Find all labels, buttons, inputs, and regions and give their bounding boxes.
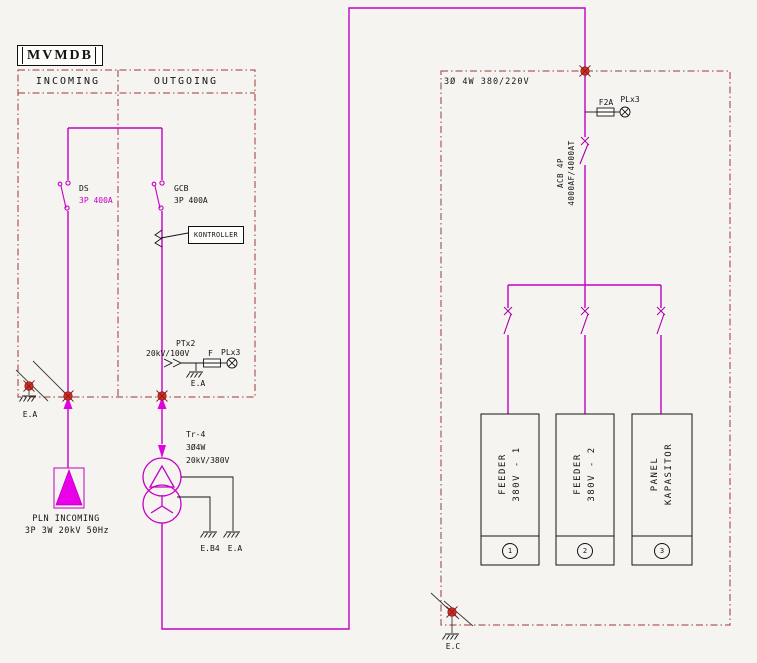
- feeder1-blade: [504, 314, 511, 334]
- feeder3-line2: KAPASITOR: [662, 443, 676, 505]
- transformer-ratio-label: 20kV/380V: [186, 456, 229, 465]
- section-incoming-label: INCOMING: [36, 76, 100, 87]
- kontroller-box: KONTROLLER: [188, 226, 244, 244]
- pt-ground-label: E.A: [191, 379, 205, 388]
- withdraw-arrows: [64, 397, 167, 458]
- node-right-corner-icon: [447, 607, 458, 618]
- feeder1-number-badge: 1: [502, 543, 518, 559]
- node-lv-entry-icon: [580, 66, 591, 77]
- gcb-rating-label: 3P 400A: [174, 196, 208, 205]
- plx3-lamp-label: PLx3: [620, 95, 639, 104]
- f2a-fuse-icon: [597, 108, 614, 116]
- node-incoming-icon: [63, 391, 74, 402]
- source-rating-label: 3P 3W 20kV 50Hz: [25, 527, 109, 536]
- section-outgoing-label: OUTGOING: [154, 76, 218, 87]
- node-outgoing-icon: [157, 391, 168, 402]
- gcb-switch-symbol: [152, 181, 164, 210]
- feeder3-number-badge: 3: [654, 543, 670, 559]
- panel-title: MVMDB: [17, 45, 103, 66]
- feeder2-blade: [581, 314, 588, 334]
- neutral-ground-label: E.B4: [200, 544, 219, 553]
- acb-contact-icon: [581, 137, 589, 145]
- ct-symbol: [155, 230, 188, 247]
- feeder2-line2: 380V - 2: [585, 446, 599, 501]
- feeder2-number-badge: 2: [577, 543, 593, 559]
- pt-lamp-icon: [227, 358, 237, 368]
- single-line-diagram: MVMDB INCOMING OUTGOING DS 3P 400A GCB 3…: [0, 0, 757, 663]
- tank-ground-icon: [224, 532, 241, 538]
- transformer-name-label: Tr-4: [186, 430, 205, 439]
- feeder3-contact-icon: [657, 307, 665, 315]
- pt-ground-icon: [187, 372, 204, 378]
- ds-name-label: DS: [79, 184, 89, 193]
- feeder3-line1: PANEL: [648, 443, 662, 505]
- pt-lamp-label: PLx3: [221, 348, 240, 357]
- plx3-lamp-icon: [620, 107, 630, 117]
- pt-name-label: PTx2: [176, 339, 195, 348]
- schematic-canvas: [0, 0, 757, 663]
- feeder2-contact-icon: [581, 307, 589, 315]
- pt-ratio-label: 20kV/100V: [146, 349, 189, 358]
- feeder3-blade: [657, 314, 664, 334]
- ds-rating-label: 3P 400A: [79, 196, 113, 205]
- feeder1-label: FEEDER 380V - 1: [496, 446, 524, 501]
- acb-rating-label: ACB 4P 4000AF/4000AT: [555, 140, 577, 205]
- lv-system-label: 3Ø 4W 380/220V: [444, 78, 530, 87]
- feeder1-contact-icon: [504, 307, 512, 315]
- feeder2-label: FEEDER 380V - 2: [571, 446, 599, 501]
- right-corner-ground-label: E.C: [446, 642, 460, 651]
- pt-fuse-label: F: [208, 349, 213, 358]
- transformer-earthing: [177, 477, 233, 531]
- feeder3-label: PANEL KAPASITOR: [648, 443, 676, 505]
- transformer-symbol: [143, 458, 181, 523]
- source-name-label: PLN INCOMING: [32, 515, 99, 524]
- feeder1-line2: 380V - 1: [510, 446, 524, 501]
- utility-source-symbol: [54, 468, 84, 508]
- f2a-fuse-label: F2A: [599, 98, 613, 107]
- neutral-ground-icon: [201, 532, 218, 538]
- transformer-config-label: 3Ø4W: [186, 443, 205, 452]
- acb-line1: ACB 4P: [555, 140, 566, 205]
- feeder1-line1: FEEDER: [496, 446, 510, 501]
- pt-fuse-icon: [204, 359, 221, 367]
- left-corner-ground-label: E.A: [23, 410, 37, 419]
- acb-blade: [580, 144, 588, 164]
- gcb-name-label: GCB: [174, 184, 188, 193]
- feeder2-line1: FEEDER: [571, 446, 585, 501]
- node-left-corner-icon: [24, 381, 35, 392]
- tank-ground-label: E.A: [228, 544, 242, 553]
- right-corner-ground-icon: [443, 634, 460, 640]
- acb-line2: 4000AF/4000AT: [566, 140, 577, 205]
- ds-switch-symbol: [58, 181, 70, 210]
